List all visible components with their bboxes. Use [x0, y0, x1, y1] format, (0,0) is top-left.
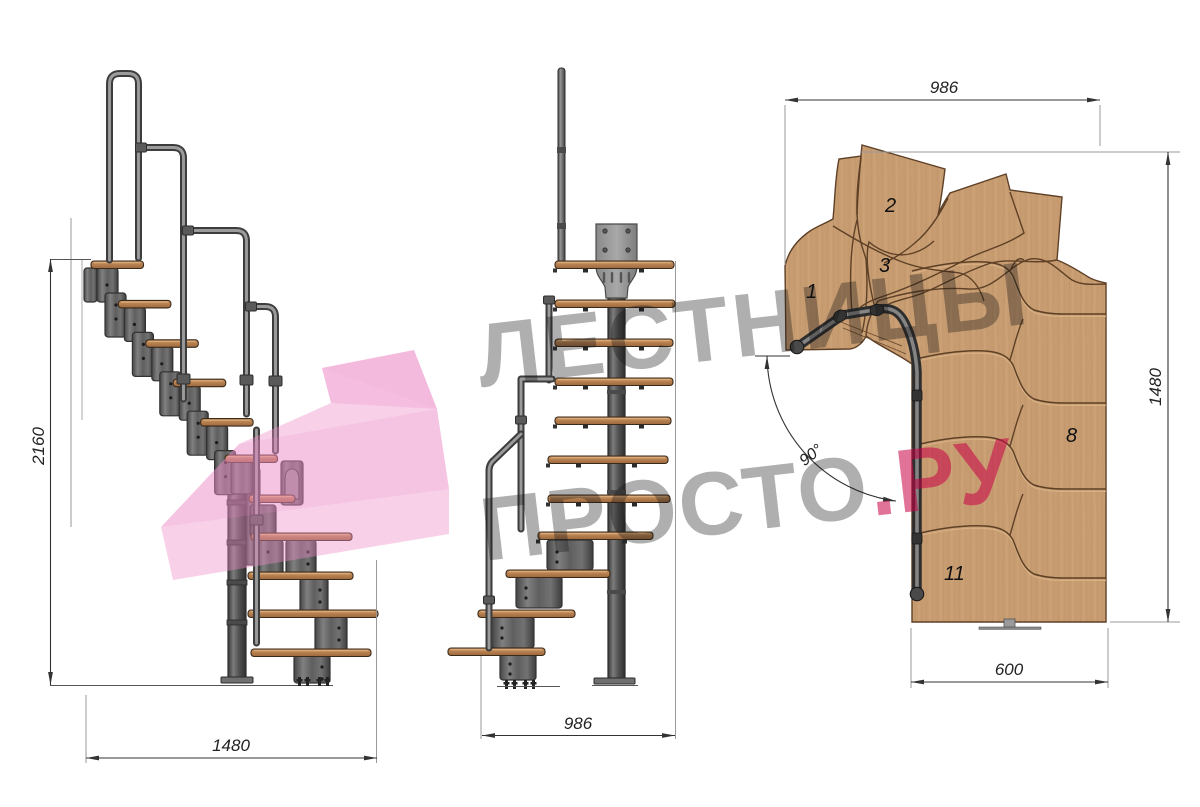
svg-text:1480: 1480: [1146, 368, 1165, 406]
svg-text:11: 11: [944, 563, 965, 585]
svg-text:600: 600: [995, 660, 1024, 679]
svg-text:8: 8: [1066, 425, 1077, 447]
svg-text:986: 986: [930, 78, 959, 97]
svg-text:986: 986: [564, 714, 593, 733]
svg-text:2: 2: [884, 195, 896, 217]
svg-text:1480: 1480: [212, 736, 250, 755]
svg-text:2160: 2160: [29, 427, 48, 466]
